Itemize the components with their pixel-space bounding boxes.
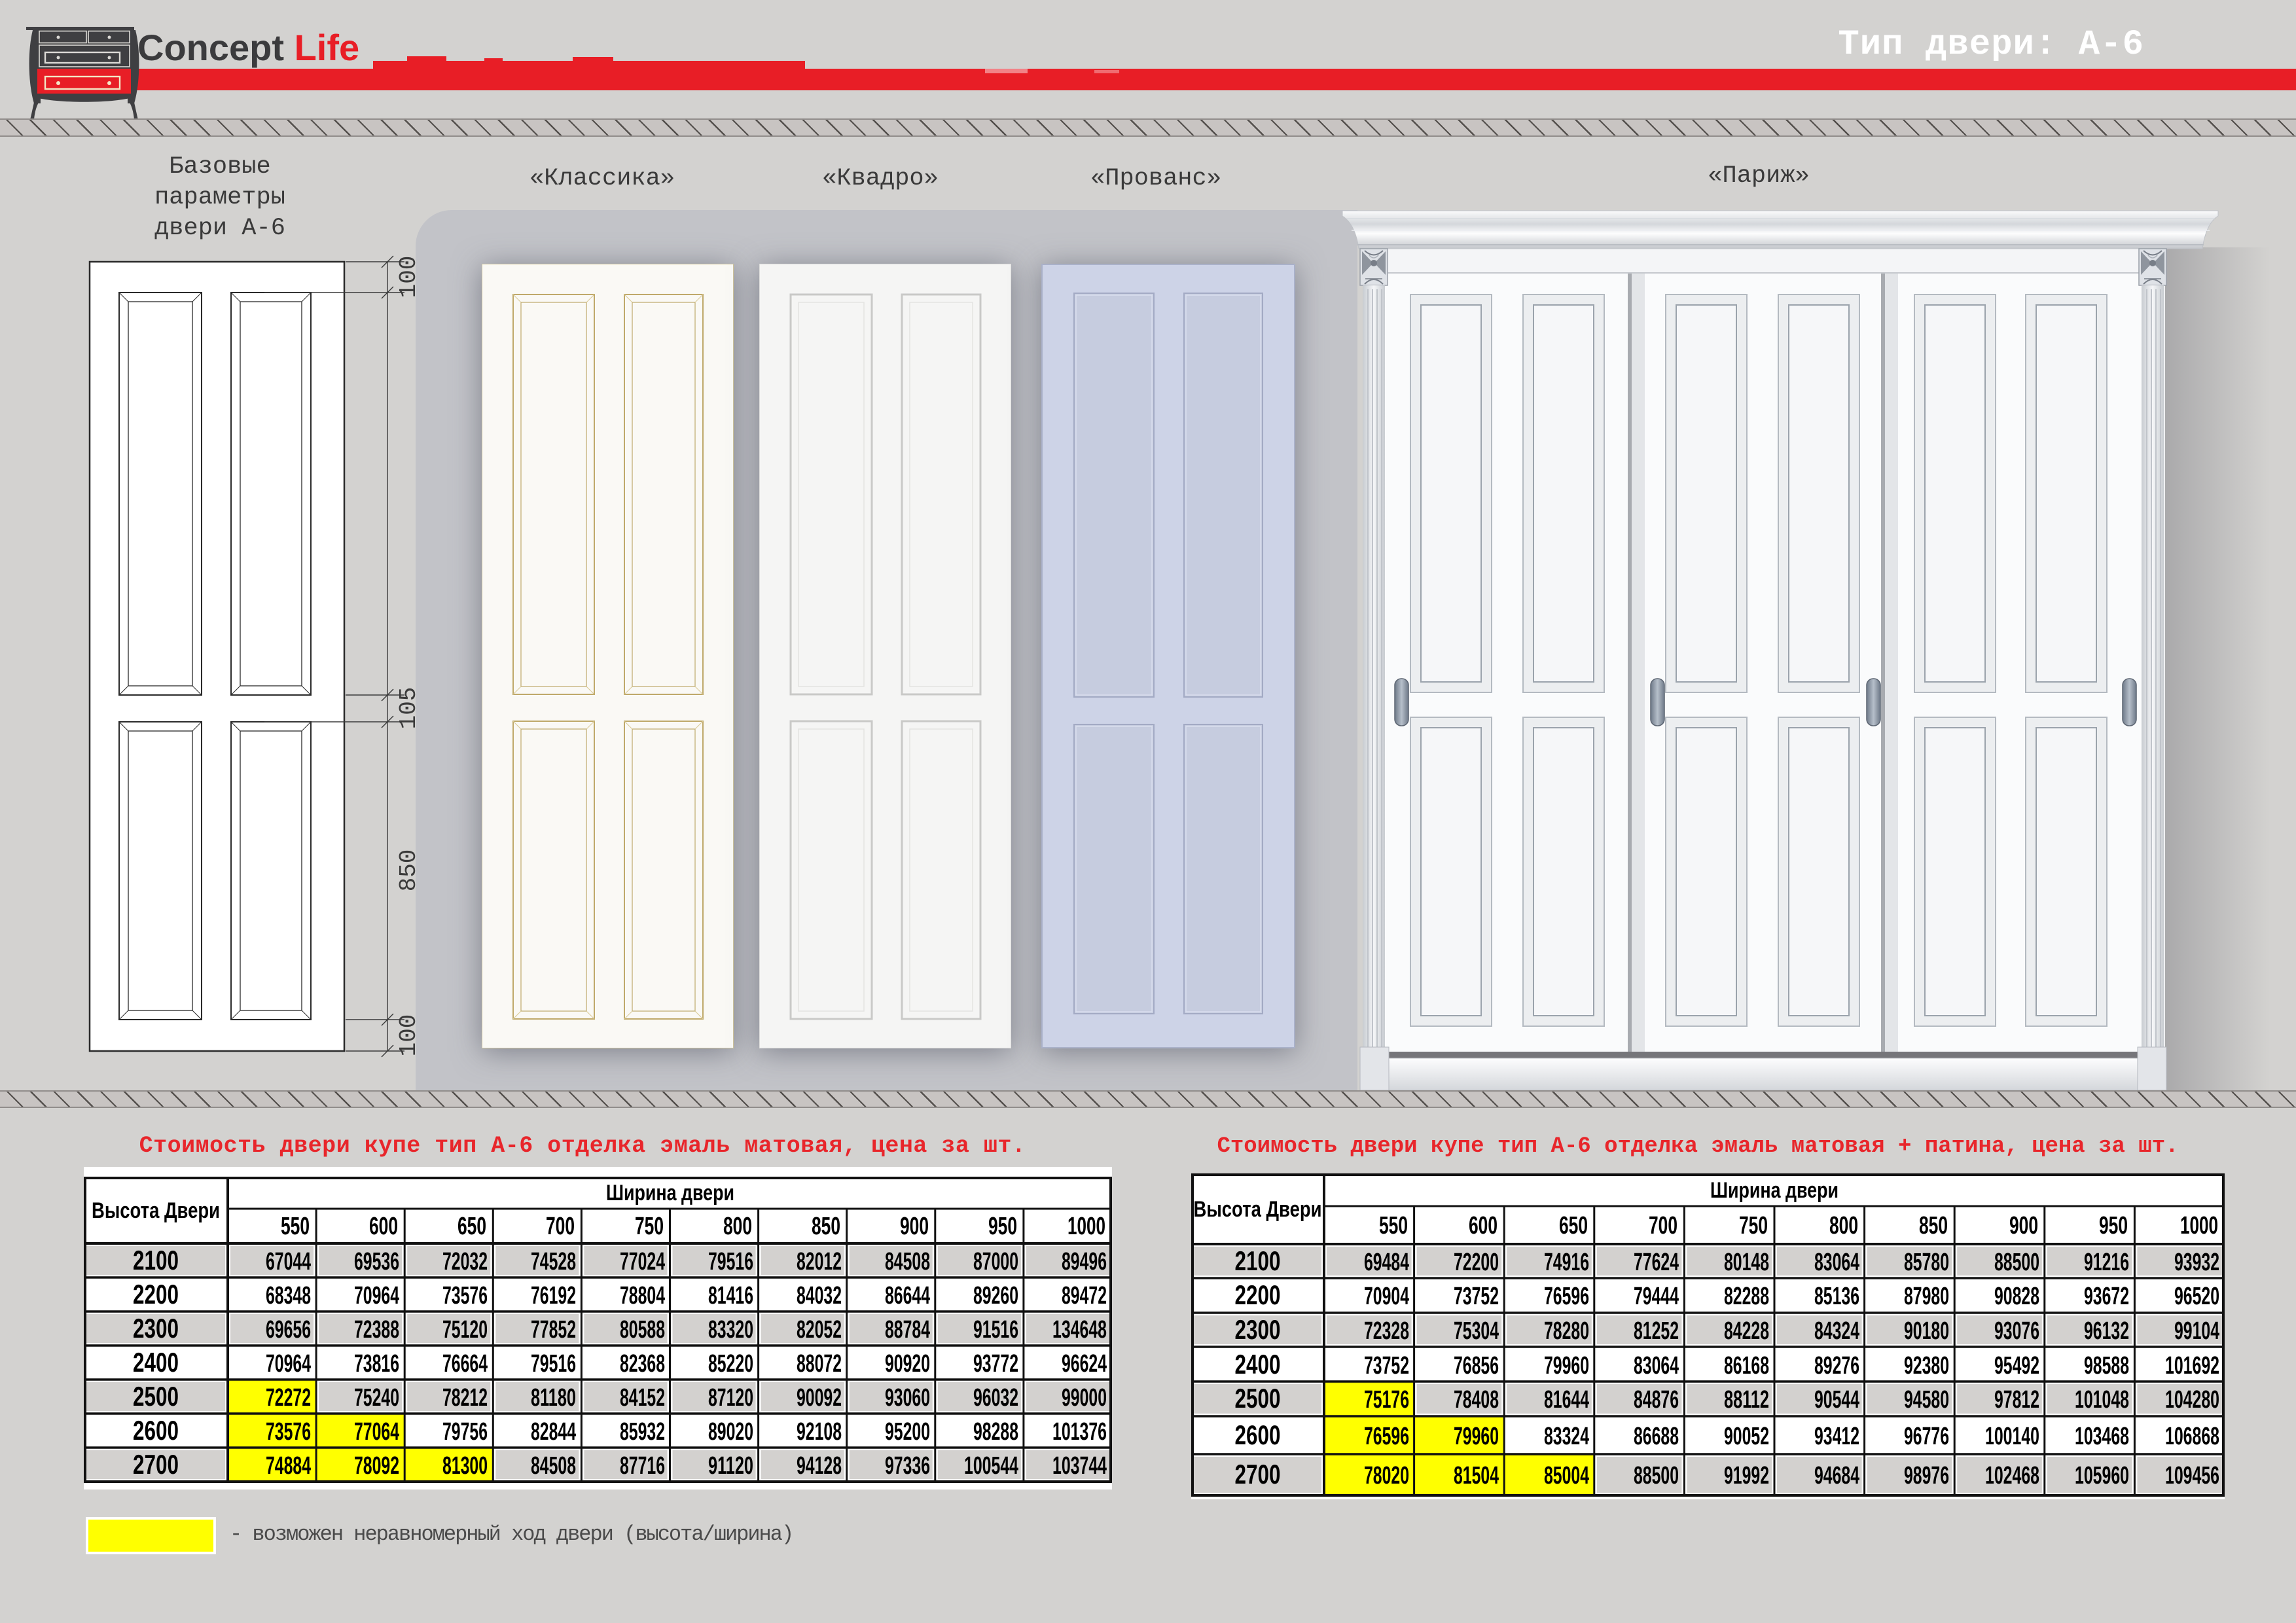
svg-text:75176: 75176 [1364, 1386, 1409, 1414]
svg-text:99000: 99000 [1062, 1384, 1107, 1412]
svg-text:97336: 97336 [885, 1452, 930, 1480]
svg-text:80588: 80588 [620, 1316, 665, 1344]
svg-text:77064: 77064 [354, 1418, 399, 1446]
svg-text:101692: 101692 [2165, 1352, 2219, 1380]
svg-text:87716: 87716 [620, 1452, 665, 1480]
svg-text:76596: 76596 [1364, 1423, 1409, 1450]
svg-text:109456: 109456 [2165, 1462, 2219, 1489]
svg-text:72032: 72032 [442, 1248, 488, 1275]
svg-text:96520: 96520 [2174, 1283, 2219, 1310]
svg-text:84508: 84508 [531, 1452, 576, 1480]
svg-text:92380: 92380 [1904, 1352, 1949, 1380]
svg-text:98288: 98288 [973, 1418, 1018, 1446]
svg-text:81300: 81300 [442, 1452, 488, 1480]
svg-text:95200: 95200 [885, 1418, 930, 1446]
svg-text:90920: 90920 [885, 1350, 930, 1378]
svg-text:Ширина двери: Ширина двери [1710, 1178, 1839, 1203]
svg-text:850: 850 [812, 1213, 840, 1240]
svg-text:650: 650 [457, 1213, 486, 1240]
svg-text:700: 700 [1649, 1212, 1677, 1240]
svg-text:79516: 79516 [708, 1248, 753, 1275]
svg-text:75240: 75240 [354, 1384, 399, 1412]
svg-text:84324: 84324 [1814, 1317, 1859, 1345]
svg-text:98976: 98976 [1904, 1462, 1949, 1489]
svg-text:73752: 73752 [1454, 1283, 1499, 1310]
svg-text:900: 900 [900, 1213, 929, 1240]
svg-text:900: 900 [2009, 1212, 2038, 1240]
svg-text:99104: 99104 [2174, 1317, 2219, 1345]
svg-text:1000: 1000 [2180, 1212, 2218, 1240]
svg-text:650: 650 [1559, 1212, 1588, 1240]
svg-text:77852: 77852 [531, 1316, 576, 1344]
svg-text:84152: 84152 [620, 1384, 665, 1412]
svg-text:87000: 87000 [973, 1248, 1018, 1275]
svg-text:750: 750 [1739, 1212, 1768, 1240]
svg-text:1000: 1000 [1067, 1213, 1105, 1240]
svg-text:2200: 2200 [133, 1279, 179, 1310]
svg-text:83064: 83064 [1634, 1352, 1679, 1380]
svg-text:86168: 86168 [1724, 1352, 1769, 1380]
svg-text:101376: 101376 [1052, 1418, 1107, 1446]
svg-text:78020: 78020 [1364, 1462, 1409, 1489]
svg-text:76192: 76192 [531, 1282, 576, 1310]
svg-text:103468: 103468 [2075, 1423, 2129, 1450]
svg-text:2100: 2100 [1235, 1245, 1281, 1276]
svg-text:102468: 102468 [1985, 1462, 2039, 1489]
svg-text:74884: 74884 [266, 1452, 311, 1480]
svg-text:86644: 86644 [885, 1282, 930, 1310]
svg-text:850: 850 [395, 849, 422, 892]
svg-text:69656: 69656 [266, 1316, 311, 1344]
svg-text:88500: 88500 [1634, 1462, 1679, 1489]
svg-text:82052: 82052 [797, 1316, 842, 1344]
svg-text:100: 100 [395, 1014, 422, 1057]
svg-text:83064: 83064 [1814, 1249, 1859, 1276]
svg-text:79960: 79960 [1454, 1423, 1499, 1450]
svg-text:100: 100 [395, 256, 422, 298]
svg-text:90092: 90092 [797, 1384, 842, 1412]
svg-text:88072: 88072 [797, 1350, 842, 1378]
svg-text:Высота Двери: Высота Двери [1194, 1197, 1322, 1222]
svg-text:106868: 106868 [2165, 1423, 2219, 1450]
svg-text:78092: 78092 [354, 1452, 399, 1480]
svg-text:86688: 86688 [1634, 1423, 1679, 1450]
svg-text:88112: 88112 [1724, 1386, 1769, 1414]
svg-text:75304: 75304 [1454, 1317, 1499, 1345]
svg-text:103744: 103744 [1052, 1452, 1107, 1480]
svg-text:85136: 85136 [1814, 1283, 1859, 1310]
svg-text:70964: 70964 [354, 1282, 399, 1310]
svg-text:94580: 94580 [1904, 1386, 1949, 1414]
svg-text:81252: 81252 [1634, 1317, 1679, 1345]
svg-text:69484: 69484 [1364, 1249, 1409, 1276]
svg-text:91992: 91992 [1724, 1462, 1769, 1489]
svg-text:84876: 84876 [1634, 1386, 1679, 1414]
svg-text:2500: 2500 [1235, 1383, 1281, 1414]
svg-text:79444: 79444 [1634, 1283, 1679, 1310]
svg-text:Высота Двери: Высота Двери [92, 1198, 220, 1223]
svg-text:70904: 70904 [1364, 1283, 1409, 1310]
svg-text:88500: 88500 [1994, 1249, 2039, 1276]
svg-text:80148: 80148 [1724, 1249, 1769, 1276]
svg-text:81644: 81644 [1544, 1386, 1589, 1414]
svg-text:2600: 2600 [133, 1415, 179, 1446]
svg-text:85932: 85932 [620, 1418, 665, 1446]
svg-text:87120: 87120 [708, 1384, 753, 1412]
svg-text:2400: 2400 [1235, 1349, 1281, 1380]
svg-text:93932: 93932 [2174, 1249, 2219, 1276]
svg-text:73752: 73752 [1364, 1352, 1409, 1380]
svg-text:85780: 85780 [1904, 1249, 1949, 1276]
svg-text:2300: 2300 [133, 1313, 179, 1344]
svg-text:95492: 95492 [1994, 1352, 2039, 1380]
svg-text:88784: 88784 [885, 1316, 930, 1344]
svg-text:2300: 2300 [1235, 1314, 1281, 1345]
svg-text:950: 950 [988, 1213, 1017, 1240]
svg-text:69536: 69536 [354, 1248, 399, 1275]
svg-text:78408: 78408 [1454, 1386, 1499, 1414]
svg-text:550: 550 [1379, 1212, 1408, 1240]
svg-text:93772: 93772 [973, 1350, 1018, 1378]
svg-text:105960: 105960 [2075, 1462, 2129, 1489]
svg-text:89496: 89496 [1062, 1248, 1107, 1275]
svg-text:83324: 83324 [1544, 1423, 1589, 1450]
svg-text:98588: 98588 [2084, 1352, 2129, 1380]
svg-text:72388: 72388 [354, 1316, 399, 1344]
svg-text:2700: 2700 [133, 1449, 179, 1480]
svg-text:2400: 2400 [133, 1347, 179, 1378]
svg-text:72328: 72328 [1364, 1317, 1409, 1345]
svg-text:600: 600 [369, 1213, 398, 1240]
svg-text:91120: 91120 [708, 1452, 753, 1480]
svg-text:800: 800 [723, 1213, 752, 1240]
svg-text:700: 700 [546, 1213, 575, 1240]
svg-text:76664: 76664 [442, 1350, 488, 1378]
svg-text:79960: 79960 [1544, 1352, 1589, 1380]
svg-text:81180: 81180 [531, 1384, 576, 1412]
svg-text:77024: 77024 [620, 1248, 665, 1275]
svg-text:82012: 82012 [797, 1248, 842, 1275]
svg-text:104280: 104280 [2165, 1386, 2219, 1414]
svg-text:96132: 96132 [2084, 1317, 2129, 1345]
svg-text:90052: 90052 [1724, 1423, 1769, 1450]
svg-text:72272: 72272 [266, 1384, 311, 1412]
svg-text:70964: 70964 [266, 1350, 311, 1378]
svg-text:93672: 93672 [2084, 1283, 2129, 1310]
svg-text:800: 800 [1829, 1212, 1858, 1240]
svg-text:79516: 79516 [531, 1350, 576, 1378]
svg-text:82288: 82288 [1724, 1283, 1769, 1310]
svg-text:89472: 89472 [1062, 1282, 1107, 1310]
svg-text:83320: 83320 [708, 1316, 753, 1344]
svg-text:81504: 81504 [1454, 1462, 1499, 1489]
svg-text:105: 105 [395, 687, 422, 730]
svg-text:600: 600 [1469, 1212, 1498, 1240]
svg-text:89260: 89260 [973, 1282, 1018, 1310]
svg-text:72200: 72200 [1454, 1249, 1499, 1276]
svg-text:90828: 90828 [1994, 1283, 2039, 1310]
svg-text:950: 950 [2099, 1212, 2128, 1240]
svg-text:76856: 76856 [1454, 1352, 1499, 1380]
svg-text:2500: 2500 [133, 1381, 179, 1412]
svg-text:74528: 74528 [531, 1248, 576, 1275]
svg-text:90544: 90544 [1814, 1386, 1859, 1414]
svg-text:87980: 87980 [1904, 1283, 1949, 1310]
svg-text:2700: 2700 [1235, 1459, 1281, 1489]
svg-text:78804: 78804 [620, 1282, 665, 1310]
svg-text:100140: 100140 [1985, 1423, 2039, 1450]
svg-text:93412: 93412 [1814, 1423, 1859, 1450]
svg-text:77624: 77624 [1634, 1249, 1679, 1276]
svg-text:73576: 73576 [266, 1418, 311, 1446]
svg-text:79756: 79756 [442, 1418, 488, 1446]
svg-text:78280: 78280 [1544, 1317, 1589, 1345]
svg-text:96776: 96776 [1904, 1423, 1949, 1450]
svg-text:93076: 93076 [1994, 1317, 2039, 1345]
svg-text:97812: 97812 [1994, 1386, 2039, 1414]
svg-text:78212: 78212 [442, 1384, 488, 1412]
svg-text:91516: 91516 [973, 1316, 1018, 1344]
svg-text:850: 850 [1919, 1212, 1948, 1240]
svg-text:67044: 67044 [266, 1248, 311, 1275]
svg-text:100544: 100544 [964, 1452, 1018, 1480]
svg-text:85004: 85004 [1544, 1462, 1589, 1489]
svg-text:134648: 134648 [1052, 1316, 1107, 1344]
svg-text:Ширина двери: Ширина двери [606, 1181, 734, 1205]
svg-text:75120: 75120 [442, 1316, 488, 1344]
svg-text:90180: 90180 [1904, 1317, 1949, 1345]
svg-text:84032: 84032 [797, 1282, 842, 1310]
svg-text:89020: 89020 [708, 1418, 753, 1446]
svg-text:81416: 81416 [708, 1282, 753, 1310]
svg-text:89276: 89276 [1814, 1352, 1859, 1380]
svg-text:73576: 73576 [442, 1282, 488, 1310]
svg-text:2600: 2600 [1235, 1419, 1281, 1450]
svg-text:91216: 91216 [2084, 1249, 2129, 1276]
svg-text:96032: 96032 [973, 1384, 1018, 1412]
svg-text:101048: 101048 [2075, 1386, 2129, 1414]
svg-text:2100: 2100 [133, 1245, 179, 1275]
svg-text:68348: 68348 [266, 1282, 311, 1310]
svg-text:85220: 85220 [708, 1350, 753, 1378]
svg-text:82844: 82844 [531, 1418, 576, 1446]
svg-text:84228: 84228 [1724, 1317, 1769, 1345]
svg-text:92108: 92108 [797, 1418, 842, 1446]
svg-text:750: 750 [635, 1213, 664, 1240]
svg-text:94684: 94684 [1814, 1462, 1859, 1489]
svg-text:82368: 82368 [620, 1350, 665, 1378]
svg-text:74916: 74916 [1544, 1249, 1589, 1276]
svg-text:2200: 2200 [1235, 1279, 1281, 1310]
svg-text:96624: 96624 [1062, 1350, 1107, 1378]
svg-text:550: 550 [281, 1213, 310, 1240]
svg-text:84508: 84508 [885, 1248, 930, 1275]
svg-text:94128: 94128 [797, 1452, 842, 1480]
svg-text:76596: 76596 [1544, 1283, 1589, 1310]
svg-text:73816: 73816 [354, 1350, 399, 1378]
svg-text:93060: 93060 [885, 1384, 930, 1412]
